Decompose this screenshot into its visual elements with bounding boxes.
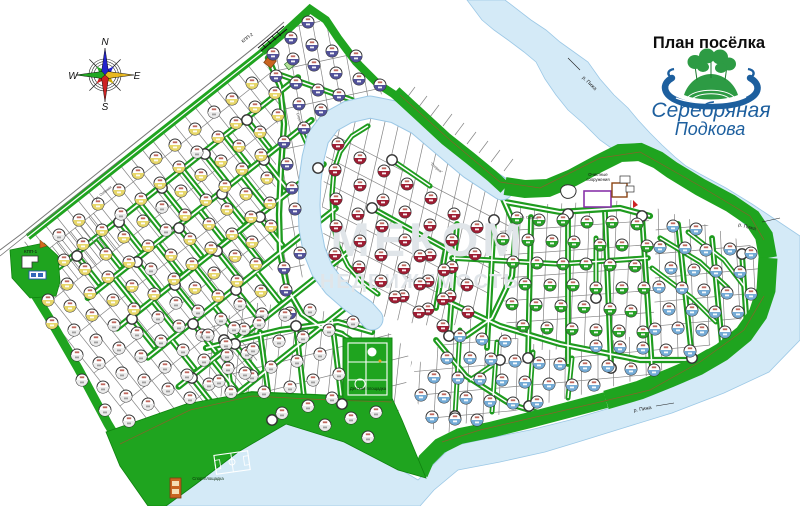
svg-text:W: W <box>68 71 79 82</box>
svg-text:сооружения: сооружения <box>586 177 609 182</box>
svg-text:N: N <box>101 37 109 48</box>
svg-text:S: S <box>102 102 109 113</box>
svg-text:КПП-1: КПП-1 <box>24 249 38 254</box>
svg-text:E: E <box>134 71 141 82</box>
svg-text:Детская площадка: Детская площадка <box>350 386 387 391</box>
svg-text:Подкова: Подкова <box>675 119 746 139</box>
svg-text:Спортплощадка: Спортплощадка <box>192 476 224 481</box>
